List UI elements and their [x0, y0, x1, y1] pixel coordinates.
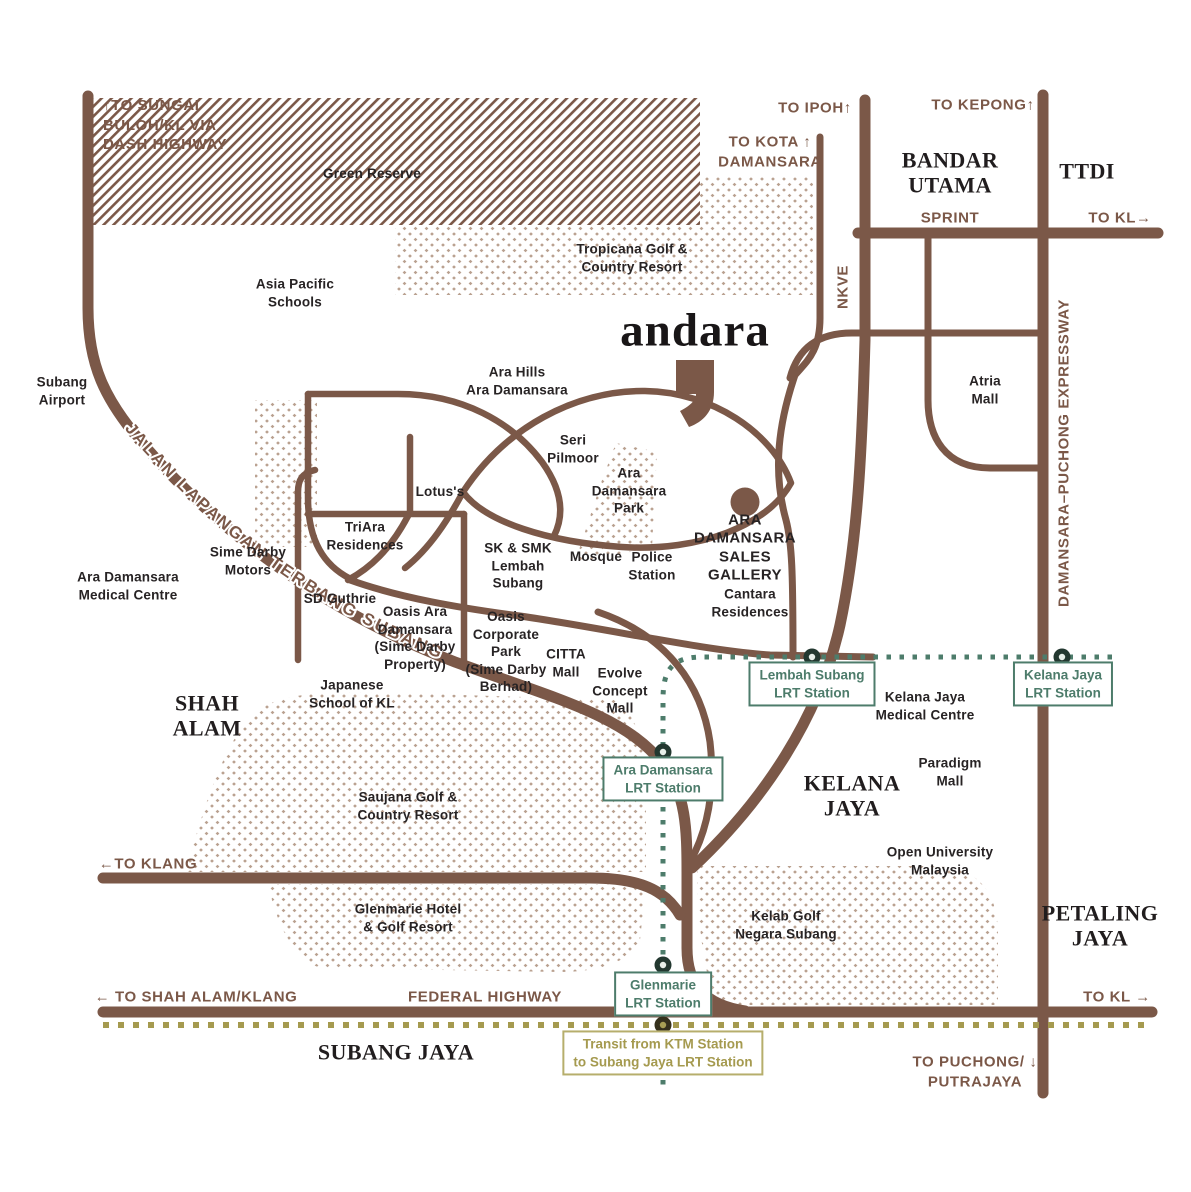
location-map: JALAN LAPANGAN TERBANG SUBANG ↑TO SUNGAI… — [0, 0, 1191, 1192]
label-atria-mall: Atria Mall — [969, 372, 1001, 407]
label-seri-pilmoor: Seri Pilmoor — [547, 431, 599, 466]
label-bandar-utama: BANDAR UTAMA — [902, 148, 999, 197]
road-bu-connector — [790, 333, 1043, 378]
label-ara-damansara-park: Ara Damansara Park — [592, 465, 667, 518]
road-atria-loop — [928, 233, 1043, 468]
saujana-golf-area — [186, 692, 646, 872]
label-to-klang: ←TO KLANG — [99, 854, 197, 874]
label-shah-alam: SHAH ALAM — [173, 691, 242, 740]
label-sime-darby-motors: Sime Darby Motors — [210, 543, 286, 578]
label-ara-damansara-sales-gallery: ARA DAMANSARA SALES GALLERY — [694, 511, 796, 584]
label-kelana-jaya-medical: Kelana Jaya Medical Centre — [876, 688, 975, 723]
label-petaling-jaya: PETALING JAYA — [1042, 901, 1158, 950]
label-kelab-golf-negara-subang: Kelab Golf Negara Subang — [735, 907, 837, 942]
label-lotus: Lotus's — [416, 483, 465, 501]
label-police-station: Police Station — [628, 548, 675, 583]
label-to-kl-bottom: TO KL → — [1083, 987, 1151, 1007]
label-japanese-school: Japanese School of KL — [309, 676, 395, 711]
label-asia-pacific-schools: Asia Pacific Schools — [256, 275, 334, 310]
label-to-ipoh: TO IPOH↑ — [778, 98, 852, 118]
kelana-jaya-lrt-station-label: Kelana Jaya LRT Station — [1013, 661, 1113, 706]
label-kelana-jaya: KELANA JAYA — [804, 771, 901, 820]
andara-logo: andara — [620, 300, 770, 361]
label-paradigm-mall: Paradigm Mall — [918, 754, 981, 789]
label-oasis-ara-damansara: Oasis Ara Damansara (Sime Darby Property… — [375, 603, 456, 673]
lembah-subang-lrt-station-label: Lembah Subang LRT Station — [748, 661, 875, 706]
label-triara-residences: TriAra Residences — [326, 518, 403, 553]
label-to-kota-damansara: TO KOTA ↑ DAMANSARA — [718, 133, 822, 172]
label-saujana-golf: Saujana Golf & Country Resort — [357, 788, 458, 823]
label-sprint: SPRINT — [921, 208, 980, 228]
label-open-university: Open University Malaysia — [887, 843, 994, 878]
label-to-kepong: TO KEPONG↑ — [931, 95, 1034, 115]
ktm-transit-label: Transit from KTM Station to Subang Jaya … — [562, 1030, 763, 1075]
andara-marker-icon — [676, 360, 714, 427]
label-ara-hills: Ara Hills Ara Damansara — [466, 363, 568, 398]
glenmarie-lrt-station-label: Glenmarie LRT Station — [614, 971, 712, 1016]
label-cantara-residences: Cantara Residences — [711, 585, 788, 620]
label-to-kl-top: TO KL→ — [1088, 208, 1151, 228]
label-citta-mall: CITTA Mall — [546, 645, 586, 680]
label-green-reserve: Green Reserve — [323, 165, 421, 183]
label-subang-jaya: SUBANG JAYA — [318, 1041, 474, 1066]
label-to-shah-alam-klang: ← TO SHAH ALAM/KLANG — [95, 987, 298, 1007]
label-ara-damansara-medical: Ara Damansara Medical Centre — [77, 568, 179, 603]
label-evolve-concept-mall: Evolve Concept Mall — [592, 665, 647, 718]
label-damansara-puchong-expressway: DAMANSARA–PUCHONG EXPRESSWAY — [1054, 299, 1074, 607]
label-ttdi: TTDI — [1059, 160, 1114, 185]
label-tropicana-golf: Tropicana Golf & Country Resort — [576, 240, 687, 275]
label-to-puchong-putrajaya: TO PUCHONG/ ↓ PUTRAJAYA — [912, 1053, 1037, 1092]
label-oasis-corporate-park: Oasis Corporate Park (Sime Darby Berhad) — [466, 608, 547, 696]
label-to-sungai-buloh: ↑TO SUNGAI BULOH/KL VIA DASH HIGHWAY — [103, 96, 227, 155]
label-glenmarie-hotel: Glenmarie Hotel & Golf Resort — [355, 900, 462, 935]
ara-damansara-lrt-station-label: Ara Damansara LRT Station — [602, 756, 723, 801]
road-loop-connector — [405, 492, 463, 568]
label-subang-airport: Subang Airport — [37, 373, 88, 408]
label-nkve: NKVE — [833, 265, 853, 309]
label-sd-guthrie: SD Guthrie — [304, 590, 377, 608]
label-sk-smk-lembah-subang: SK & SMK Lembah Subang — [484, 540, 552, 593]
label-federal-highway: FEDERAL HIGHWAY — [408, 987, 562, 1007]
label-mosque: Mosque — [570, 548, 622, 566]
